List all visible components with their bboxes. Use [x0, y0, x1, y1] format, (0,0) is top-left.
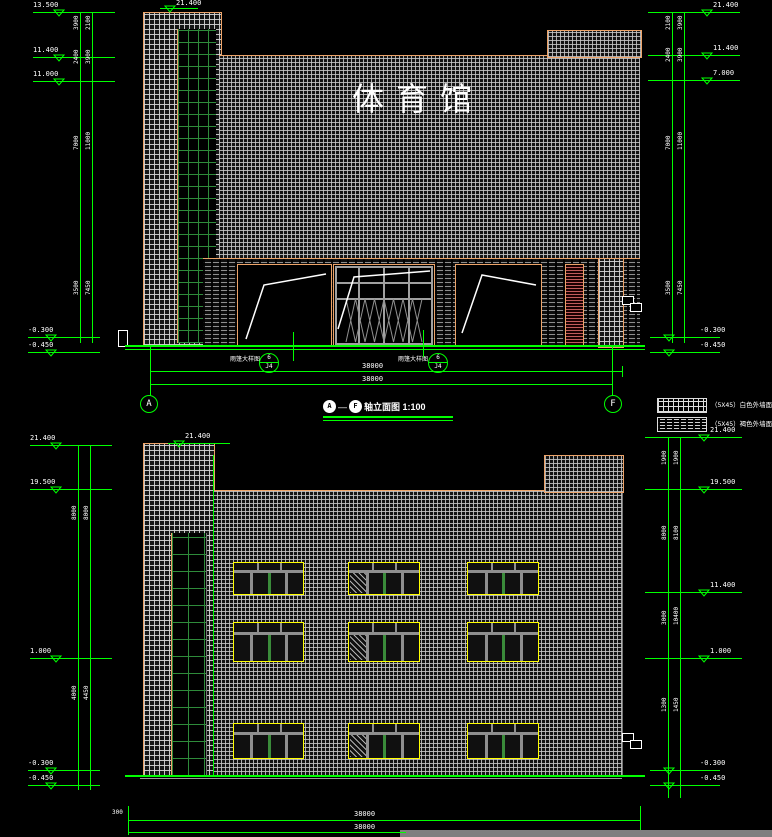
dimension-line	[128, 820, 640, 821]
window-group	[467, 622, 539, 662]
elevation-value: 1.000	[30, 648, 51, 655]
d1-main-facade: 体育馆	[219, 55, 640, 259]
elevation-marker-triangle-icon	[663, 344, 675, 352]
dimension-value: 7450	[86, 281, 92, 295]
d1-title-block: A — F 轴立面图 1:100	[323, 400, 426, 413]
elevation-marker-line	[645, 437, 742, 438]
dimension-line	[150, 371, 622, 372]
dimension-line	[125, 775, 645, 777]
elevation-marker-triangle-icon	[164, 0, 176, 8]
dimension-rail-line	[90, 445, 91, 790]
elevation-marker-triangle-icon	[701, 47, 713, 55]
elevation-marker-triangle-icon	[701, 72, 713, 80]
dimension-value: 7450	[678, 281, 684, 295]
dimension-value: 7000	[74, 136, 80, 150]
d2-tower-strip-window	[171, 533, 207, 776]
d1-overall-dim-1: 38000	[362, 363, 383, 370]
d1-overall-dim-2: 38000	[362, 376, 383, 383]
dimension-value: 1900	[674, 451, 680, 465]
dimension-value: 3900	[678, 48, 684, 62]
window-group	[233, 562, 304, 595]
detail-ref-bottom: J4	[260, 363, 278, 371]
dimension-value: 3000	[662, 611, 668, 625]
elevation-value: 21.400	[176, 0, 201, 7]
window-mullion	[520, 635, 523, 661]
window-mullion	[383, 735, 386, 758]
axis-bubble-f: F	[604, 395, 622, 413]
elevation-marker-line	[650, 352, 720, 353]
axis-letter: A	[146, 399, 151, 409]
dimension-value: 2100	[86, 16, 92, 30]
d2-right-step-2	[630, 740, 642, 749]
dimension-rail-line	[680, 437, 681, 798]
window-transom-mullion	[491, 724, 493, 732]
d2-overall-dim-1: 38000	[354, 811, 375, 818]
window-transom-mullion	[514, 563, 516, 570]
axis-bubble-a: A	[140, 395, 158, 413]
elevation-marker-line	[648, 80, 740, 81]
window-group	[348, 622, 420, 662]
window-mullion	[401, 573, 404, 594]
window-transom-mullion	[395, 623, 397, 632]
dimension-line	[150, 384, 612, 385]
dimension-value: 8000	[72, 506, 78, 520]
window-mullion	[401, 735, 404, 758]
dimension-value: 2100	[666, 16, 672, 30]
window-mullion	[268, 573, 271, 594]
window-transom-mullion	[514, 724, 516, 732]
dimension-value: 8100	[674, 526, 680, 540]
elevation-marker-line	[648, 55, 740, 56]
elevation-marker-line	[33, 12, 115, 13]
window-hatched-pane	[350, 735, 366, 757]
elevation-marker-line	[650, 785, 720, 786]
canopy-profile-icon	[238, 265, 331, 346]
dimension-rail-line	[672, 12, 673, 343]
dimension-value: 4450	[84, 686, 90, 700]
detail-bubble-right: 6 J4	[428, 353, 448, 373]
building-title: 体育馆	[352, 74, 484, 120]
window-mullion	[366, 635, 369, 661]
window-mullion	[485, 573, 488, 594]
elevation-value: 21.400	[30, 435, 55, 442]
dimension-value: 11000	[86, 132, 92, 150]
dimension-rail-line	[213, 455, 214, 775]
window-transom-mullion	[257, 623, 259, 632]
elevation-marker-triangle-icon	[698, 481, 710, 489]
window-mullion	[502, 735, 505, 758]
dimension-value: 3500	[74, 281, 80, 295]
elevation-marker-line	[645, 489, 742, 490]
window-mullion	[520, 735, 523, 758]
dimension-value: 8000	[662, 526, 668, 540]
elevation-marker-triangle-icon	[50, 650, 62, 658]
dimension-line	[125, 349, 645, 350]
detail-bubble-left: 6 J4	[259, 353, 279, 373]
window-transom-mullion	[257, 563, 259, 570]
dimension-value: 1900	[662, 451, 668, 465]
elevation-value: 19.500	[710, 479, 735, 486]
dimension-value: 7000	[666, 136, 672, 150]
canopy-note-left: 雨篷大样图	[230, 357, 260, 363]
elevation-value: 11.400	[710, 582, 735, 589]
elevation-marker-line	[30, 445, 112, 446]
d1-entrance-doors	[333, 264, 435, 347]
elevation-value: 21.400	[710, 427, 735, 434]
window-mullion	[285, 735, 288, 758]
elevation-marker-triangle-icon	[701, 4, 713, 12]
elevation-marker-triangle-icon	[698, 584, 710, 592]
dimension-value: 3900	[678, 16, 684, 30]
window-mullion	[250, 635, 253, 661]
window-transom-mullion	[491, 563, 493, 570]
elevation-value: -0.300	[700, 760, 725, 767]
elevation-value: -0.450	[700, 342, 725, 349]
dimension-rail-line	[640, 806, 641, 830]
dimension-value: 4000	[72, 686, 78, 700]
d1-title-text: 轴立面图 1:100	[364, 400, 426, 413]
window-mullion	[520, 573, 523, 594]
window-transom-mullion	[257, 724, 259, 732]
elevation-value: -0.450	[700, 775, 725, 782]
dimension-rail-line	[92, 12, 93, 343]
d1-right-step-2	[630, 303, 642, 312]
d2-right-parapet	[544, 455, 624, 493]
d1-opening-right	[455, 264, 542, 347]
d1-opening-left	[237, 264, 332, 347]
dimension-line	[323, 420, 453, 421]
window-transom-mullion	[395, 724, 397, 732]
detail-ref-bottom: J4	[429, 363, 447, 371]
window-mullion	[502, 573, 505, 594]
elevation-value: 11.400	[713, 45, 738, 52]
dimension-value: 10400	[674, 607, 680, 625]
window-mullion	[401, 635, 404, 661]
window-mullion	[366, 573, 369, 594]
elevation-value: 21.400	[185, 433, 210, 440]
cad-canvas: 体育馆	[0, 0, 772, 837]
bottom-gray-bar	[400, 830, 772, 837]
elevation-marker-triangle-icon	[173, 435, 185, 443]
elevation-marker-line	[28, 785, 100, 786]
elevation-marker-line	[30, 489, 112, 490]
window-group	[467, 723, 539, 759]
legend-label: （5X45）白色外墙面砖（白缝勾缝）	[711, 402, 772, 409]
window-mullion	[366, 735, 369, 758]
window-mullion	[268, 735, 271, 758]
dimension-value: 3500	[666, 281, 672, 295]
window-transom-mullion	[395, 563, 397, 570]
d1-red-louver-panel	[565, 264, 584, 346]
entrance-glazing-icon	[334, 265, 434, 346]
window-mullion	[268, 635, 271, 661]
dimension-value: 1450	[674, 698, 680, 712]
elevation-value: -0.300	[28, 327, 53, 334]
detail-ref-top: 6	[260, 354, 278, 362]
dimension-rail-line	[622, 366, 623, 377]
dimension-rail-line	[684, 12, 685, 343]
elevation-marker-triangle-icon	[698, 650, 710, 658]
elevation-marker-line	[33, 81, 115, 82]
window-group	[233, 723, 304, 759]
window-hatched-pane	[350, 573, 366, 593]
elevation-marker-line	[650, 770, 720, 771]
elevation-value: 1.000	[710, 648, 731, 655]
elevation-marker-line	[645, 658, 742, 659]
title-axis-circle-f: F	[349, 400, 362, 413]
dimension-value: 3900	[86, 50, 92, 64]
title-dash: —	[338, 402, 347, 412]
window-mullion	[250, 573, 253, 594]
dimension-value: 2400	[666, 48, 672, 62]
dimension-line	[140, 778, 622, 779]
window-mullion	[383, 573, 386, 594]
d2-overall-dim-2: 38000	[354, 824, 375, 831]
elevation-marker-line	[30, 658, 112, 659]
elevation-marker-triangle-icon	[663, 762, 675, 770]
elevation-marker-line	[648, 12, 740, 13]
elevation-value: 19.500	[30, 479, 55, 486]
d1-grid-column	[598, 258, 624, 348]
elevation-value: 11.400	[33, 47, 58, 54]
dimension-line	[125, 345, 645, 347]
elevation-marker-line	[28, 770, 100, 771]
window-mullion	[485, 735, 488, 758]
dimension-line	[128, 832, 406, 833]
window-transom-mullion	[514, 623, 516, 632]
window-hatched-pane	[350, 635, 366, 660]
elevation-value: 11.000	[33, 71, 58, 78]
window-mullion	[285, 635, 288, 661]
dimension-value: 2400	[74, 50, 80, 64]
dimension-value: 3900	[74, 16, 80, 30]
legend-swatch-white-tile	[657, 398, 707, 413]
elevation-value: -0.300	[28, 760, 53, 767]
elevation-marker-triangle-icon	[663, 329, 675, 337]
window-transom-mullion	[372, 724, 374, 732]
dimension-rail-line	[78, 445, 79, 790]
dimension-value: 11000	[678, 132, 684, 150]
window-transom-mullion	[280, 623, 282, 632]
window-transom-mullion	[280, 724, 282, 732]
window-transom-mullion	[372, 623, 374, 632]
title-axis-circle-a: A	[323, 400, 336, 413]
window-group	[348, 562, 420, 595]
elevation-marker-triangle-icon	[663, 777, 675, 785]
window-mullion	[383, 635, 386, 661]
canopy-profile-icon	[456, 265, 541, 346]
window-transom-mullion	[491, 623, 493, 632]
dimension-rail-line	[80, 12, 81, 343]
window-transom-mullion	[280, 563, 282, 570]
elevation-value: 7.000	[713, 70, 734, 77]
elevation-value: -0.300	[700, 327, 725, 334]
dimension-rail-line	[423, 330, 424, 357]
d2-stair-tower	[143, 443, 215, 777]
elevation-marker-line	[645, 592, 742, 593]
dimension-line	[323, 416, 453, 418]
window-mullion	[250, 735, 253, 758]
elevation-value: -0.450	[28, 775, 53, 782]
dimension-rail-line	[668, 437, 669, 798]
window-group	[233, 622, 304, 662]
elevation-marker-line	[28, 352, 100, 353]
window-group	[467, 562, 539, 595]
elevation-marker-line	[650, 337, 720, 338]
dimension-value: 1300	[662, 698, 668, 712]
window-group	[348, 723, 420, 759]
window-mullion	[285, 573, 288, 594]
window-transom-mullion	[372, 563, 374, 570]
canopy-note-right: 雨篷大样图	[398, 357, 428, 363]
elevation-value: -0.450	[28, 342, 53, 349]
elevation-marker-line	[28, 337, 100, 338]
axis-letter: F	[610, 399, 615, 409]
elevation-value: 13.500	[33, 2, 58, 9]
dimension-value: 300	[112, 810, 123, 816]
d1-right-parapet	[547, 30, 642, 58]
elevation-marker-triangle-icon	[698, 429, 710, 437]
window-mullion	[502, 635, 505, 661]
dimension-value: 8000	[84, 506, 90, 520]
window-mullion	[485, 635, 488, 661]
elevation-value: 21.400	[713, 2, 738, 9]
detail-ref-top: 6	[429, 354, 447, 362]
